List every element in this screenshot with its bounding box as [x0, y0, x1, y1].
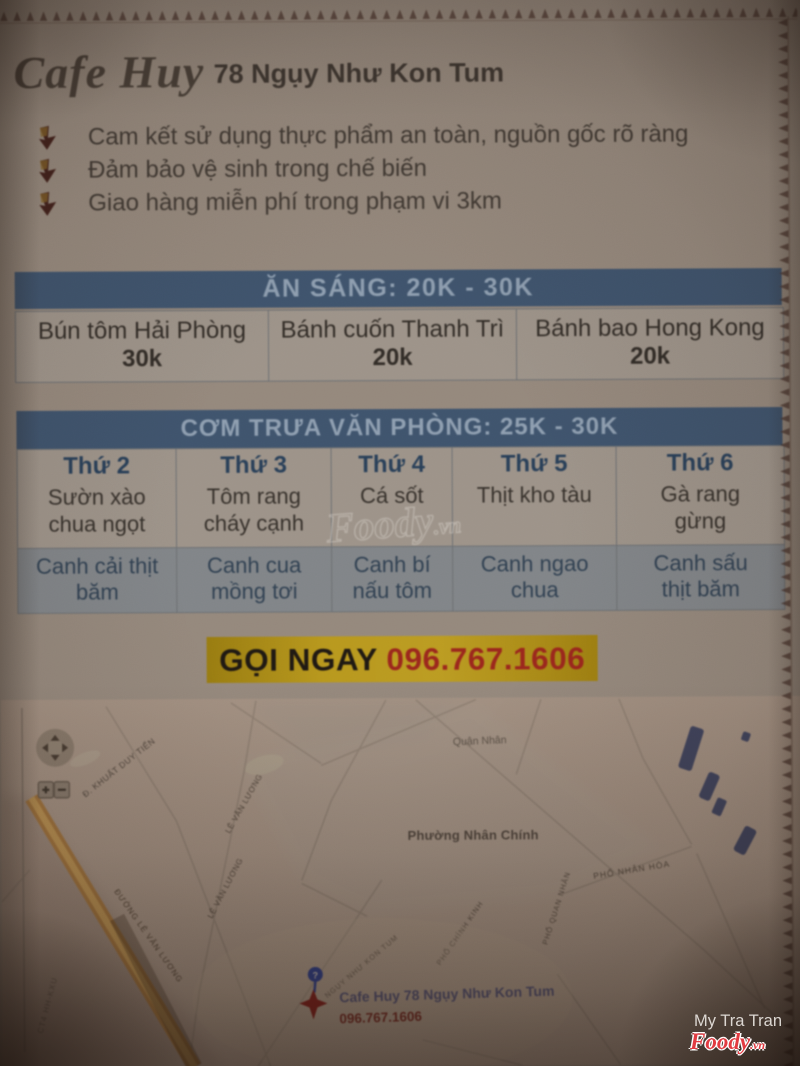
svg-text:?: ?	[313, 970, 319, 980]
svg-text:Phường Nhân Chính: Phường Nhân Chính	[408, 827, 539, 843]
svg-text:Quận Nhân: Quận Nhân	[453, 734, 507, 748]
svg-text:096.767.1606: 096.767.1606	[339, 1009, 423, 1027]
